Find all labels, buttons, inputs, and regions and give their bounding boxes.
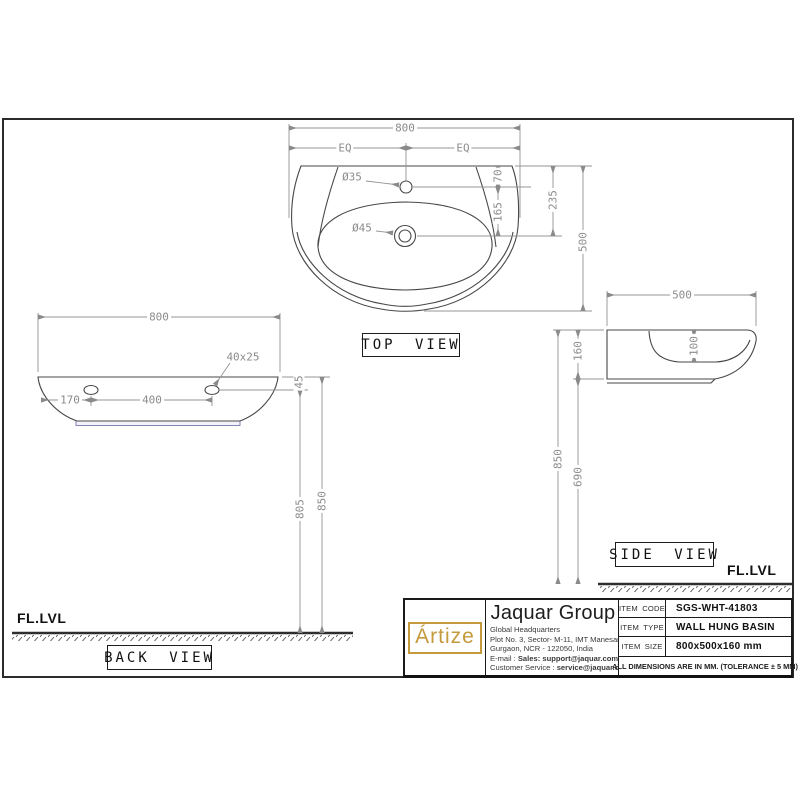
dim-faucet-to-drain: 165 xyxy=(493,200,504,224)
item-info-table: ITEM CODE SGS-WHT-41803 ITEM TYPE WALL H… xyxy=(619,600,791,675)
item-size-value: 800x500x160 mm xyxy=(666,637,791,656)
dim-eq-left: EQ xyxy=(336,143,353,154)
service-value: service@jaquar.com xyxy=(557,663,619,672)
dim-slot-spacing: 400 xyxy=(140,395,164,406)
table-row: ITEM SIZE 800x500x160 mm xyxy=(619,637,791,657)
mount-slot-right xyxy=(205,386,219,395)
address-line-1: Global Headquarters xyxy=(490,625,618,635)
tolerance-note: ALL DIMENSIONS ARE IN MM. (TOLERANCE ± 5… xyxy=(619,657,791,675)
cad-drawing-sheet: 800 EQ EQ Ø35 Ø45 70 165 235 500 TOP VIE… xyxy=(0,0,800,800)
table-row: ITEM CODE SGS-WHT-41803 xyxy=(619,600,791,618)
dim-top-width: 800 xyxy=(393,123,417,134)
item-type-label: ITEM TYPE xyxy=(619,618,666,636)
cad-linework xyxy=(0,0,800,800)
email-line: E-mail : Sales: support@jaquar.com xyxy=(490,654,618,664)
floor-level-label-back: FL.LVL xyxy=(17,610,66,626)
dim-top-to-slot: 45 xyxy=(294,373,305,390)
drain-hole-inner xyxy=(399,230,411,242)
item-code-value: SGS-WHT-41803 xyxy=(666,600,791,617)
dim-back-rim-height: 850 xyxy=(317,489,328,513)
artize-logo: Ártize xyxy=(408,622,482,654)
faucet-dia-label: Ø35 xyxy=(340,172,364,183)
title-block: Ártize Jaquar Group Global Headquarters … xyxy=(403,598,793,678)
service-label: Customer Service : xyxy=(490,663,557,672)
side-view-label: SIDE VIEW xyxy=(615,542,714,567)
table-row: ITEM TYPE WALL HUNG BASIN xyxy=(619,618,791,637)
dim-top-to-faucet: 70 xyxy=(493,167,504,184)
mount-slot-left xyxy=(84,386,98,395)
top-view-label: TOP VIEW xyxy=(362,333,460,357)
gasket-strip xyxy=(76,421,240,426)
item-code-label: ITEM CODE xyxy=(619,600,666,617)
dim-side-height: 160 xyxy=(573,339,584,363)
dim-side-depth: 500 xyxy=(670,290,694,301)
drain-dia-label: Ø45 xyxy=(350,223,374,234)
floor-level-label-side: FL.LVL xyxy=(727,562,776,578)
service-line: Customer Service : service@jaquar.com xyxy=(490,663,618,673)
dim-eq-right: EQ xyxy=(454,143,471,154)
item-type-value: WALL HUNG BASIN xyxy=(666,618,791,636)
company-name: Jaquar Group xyxy=(490,601,616,625)
dim-top-to-drain: 235 xyxy=(548,188,559,212)
dim-bottom-height: 690 xyxy=(573,465,584,489)
dim-edge-to-slot: 170 xyxy=(58,395,82,406)
item-size-label: ITEM SIZE xyxy=(619,637,666,656)
back-view-label: BACK VIEW xyxy=(107,645,212,670)
address-line-3: Gurgaon, NCR - 122050, India xyxy=(490,644,618,654)
dim-back-width: 800 xyxy=(147,312,171,323)
logo-cell: Ártize xyxy=(405,600,486,675)
dim-top-depth: 500 xyxy=(578,230,589,254)
dim-side-rim-height: 850 xyxy=(553,447,564,471)
email-label: E-mail : xyxy=(490,654,518,663)
address-line-2: Plot No. 3, Sector- M-11, IMT Manesar xyxy=(490,635,618,645)
email-value: Sales: support@jaquar.com xyxy=(518,654,618,663)
side-view-shape xyxy=(607,330,756,383)
dim-bowl-depth: 100 xyxy=(689,334,700,358)
dim-slot-height: 805 xyxy=(295,497,306,521)
mount-slot-size-label: 40x25 xyxy=(224,352,261,363)
top-view-shape xyxy=(292,166,519,311)
company-cell: Jaquar Group Global Headquarters Plot No… xyxy=(486,600,619,675)
faucet-hole xyxy=(400,181,412,193)
drain-hole-outer xyxy=(395,226,416,247)
